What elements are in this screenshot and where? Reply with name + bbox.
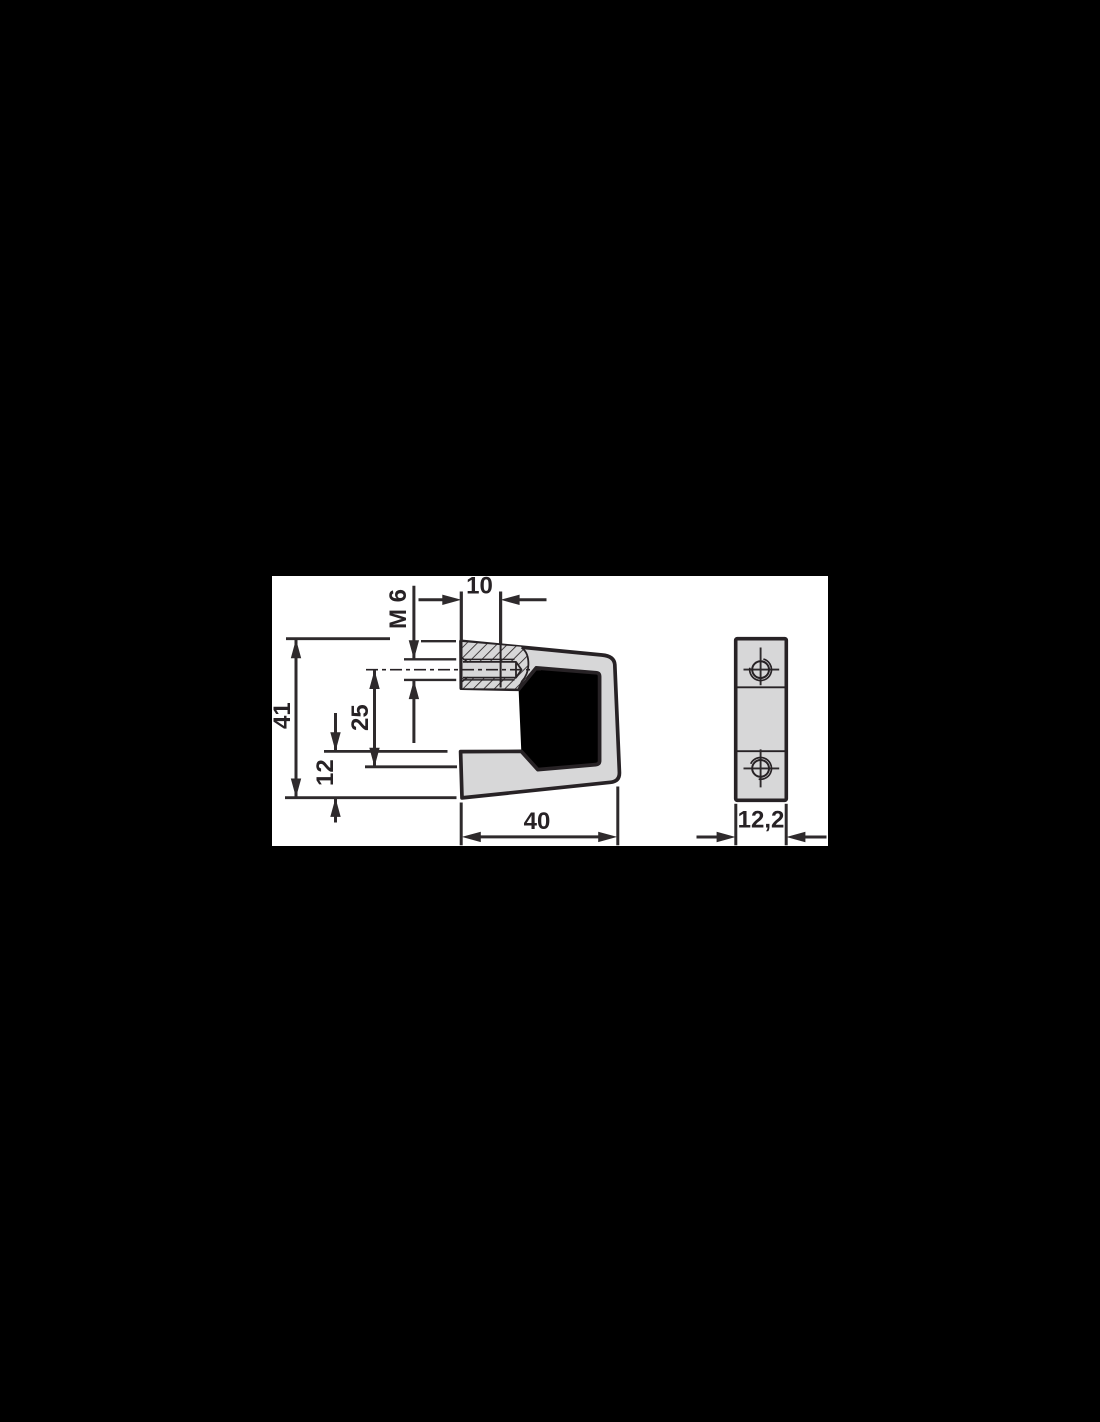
svg-text:10: 10: [466, 576, 493, 600]
svg-text:12: 12: [312, 759, 339, 786]
svg-text:M 6: M 6: [385, 589, 412, 629]
svg-text:41: 41: [272, 702, 296, 729]
svg-text:25: 25: [347, 704, 374, 731]
svg-text:12,2: 12,2: [738, 807, 785, 834]
svg-text:40: 40: [524, 808, 551, 835]
